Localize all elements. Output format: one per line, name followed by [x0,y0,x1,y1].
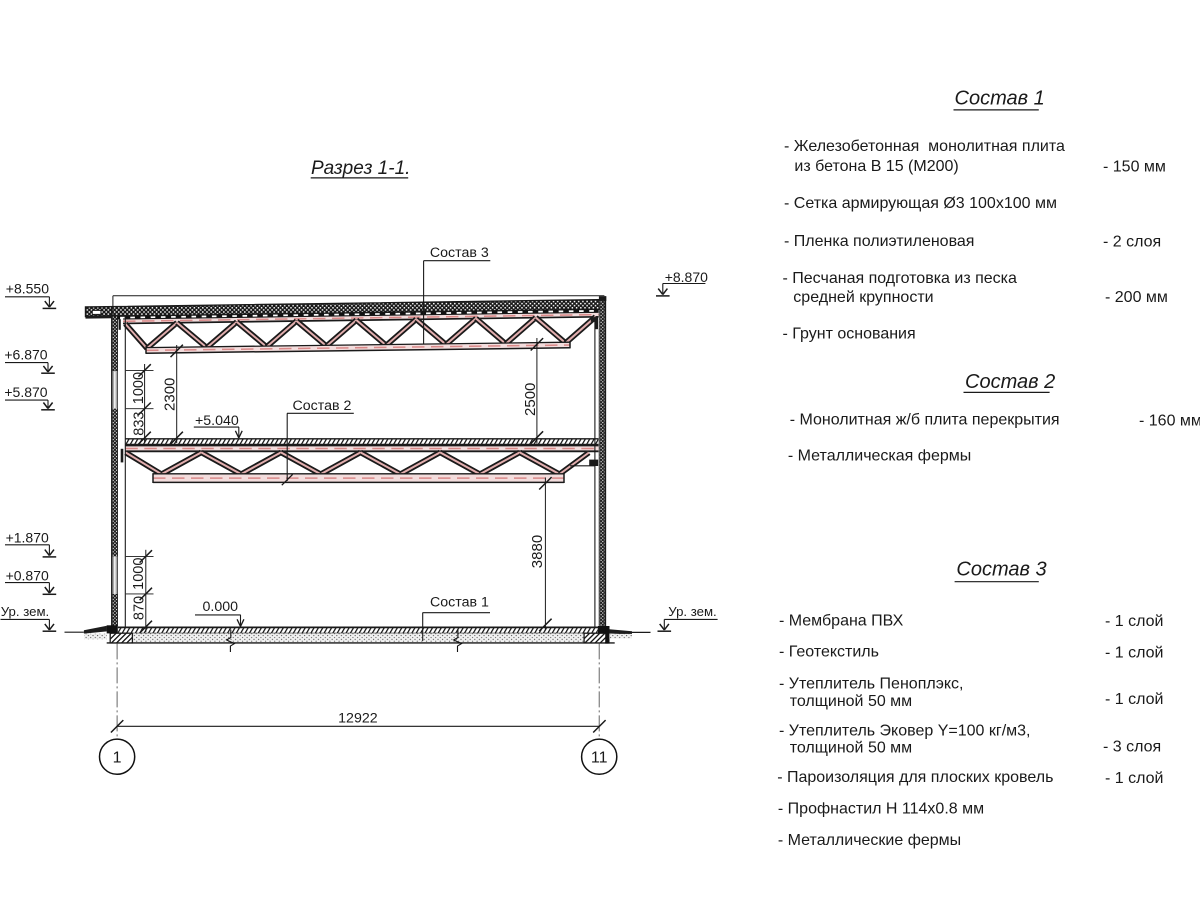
svg-text:- Монолитная ж/б плита перекры: - Монолитная ж/б плита перекрытия [790,412,1060,429]
svg-text:1: 1 [113,749,122,766]
svg-text:- Утеплитель Пеноплэкс,: - Утеплитель Пеноплэкс, [779,676,963,693]
svg-text:- Пленка полиэтиленовая: - Пленка полиэтиленовая [784,233,974,250]
svg-text:0.000: 0.000 [203,599,239,615]
svg-text:870: 870 [131,596,147,620]
svg-text:- Утеплитель Эковер Y=100 кг/м: - Утеплитель Эковер Y=100 кг/м3, [779,722,1030,739]
svg-text:- 3 слоя: - 3 слоя [1103,738,1161,755]
svg-text:толщиной 50 мм: толщиной 50 мм [790,693,913,710]
svg-text:- 2 слоя: - 2 слоя [1103,234,1161,251]
svg-text:11: 11 [591,749,608,766]
svg-text:- 150 мм: - 150 мм [1103,158,1166,175]
svg-text:Состав 3: Состав 3 [956,559,1046,581]
svg-text:- 1 слой: - 1 слой [1105,691,1163,708]
svg-text:- Профнастил Н 114х0.8 мм: - Профнастил Н 114х0.8 мм [778,800,984,817]
svg-text:+8.870: +8.870 [665,269,708,285]
svg-text:- Песчаная подготовка из песка: - Песчаная подготовка из песка [783,270,1018,287]
svg-text:из бетона В 15 (М200): из бетона В 15 (М200) [794,158,958,175]
svg-text:1000: 1000 [131,372,147,404]
svg-text:толщиной 50 мм: толщиной 50 мм [790,740,913,757]
svg-text:+6.870: +6.870 [4,347,47,363]
svg-text:- 1 слой: - 1 слой [1105,645,1163,662]
svg-text:- 200 мм: - 200 мм [1105,289,1168,306]
svg-text:+0.870: +0.870 [6,568,49,584]
svg-text:Ур. зем.: Ур. зем. [1,604,49,619]
svg-text:- 160 мм: - 160 мм [1139,413,1200,430]
svg-text:+5.870: +5.870 [4,384,47,400]
svg-text:833: 833 [132,411,148,435]
svg-text:Состав 3: Состав 3 [430,245,489,261]
svg-text:Состав 1: Состав 1 [955,88,1045,110]
svg-text:- Мембрана ПВХ: - Мембрана ПВХ [779,612,904,629]
svg-text:+8.550: +8.550 [6,281,49,297]
svg-text:Состав 2: Состав 2 [965,371,1055,393]
svg-text:- Грунт основания: - Грунт основания [783,326,916,343]
svg-text:Разрез 1-1.: Разрез 1-1. [311,158,410,179]
svg-text:- 1 слой: - 1 слой [1105,770,1163,787]
svg-text:- Металлическая фермы: - Металлическая фермы [788,447,971,464]
svg-text:+1.870: +1.870 [6,530,49,546]
svg-text:- Металлические фермы: - Металлические фермы [778,832,961,849]
svg-text:средней крупности: средней крупности [793,289,933,306]
svg-text:- 1 слой: - 1 слой [1105,613,1163,630]
svg-text:- Сетка армирующая Ø3 100х100: - Сетка армирующая Ø3 100х100 мм [784,195,1057,212]
svg-text:Состав 2: Состав 2 [293,398,352,414]
svg-text:3880: 3880 [529,535,546,568]
svg-text:+5.040: +5.040 [195,413,239,429]
svg-text:Ур. зем.: Ур. зем. [668,604,716,619]
svg-text:12922: 12922 [338,711,378,727]
svg-text:2500: 2500 [522,383,539,416]
svg-text:2300: 2300 [162,378,179,411]
svg-text:- Железобетонная монолитная п: - Железобетонная монолитная плита [784,138,1065,155]
svg-text:- Геотекстиль: - Геотекстиль [779,644,879,661]
svg-text:- Пароизоляция для плоских кро: - Пароизоляция для плоских кровель [777,769,1053,786]
svg-text:Состав 1: Состав 1 [430,594,489,610]
svg-text:1000: 1000 [131,558,147,590]
